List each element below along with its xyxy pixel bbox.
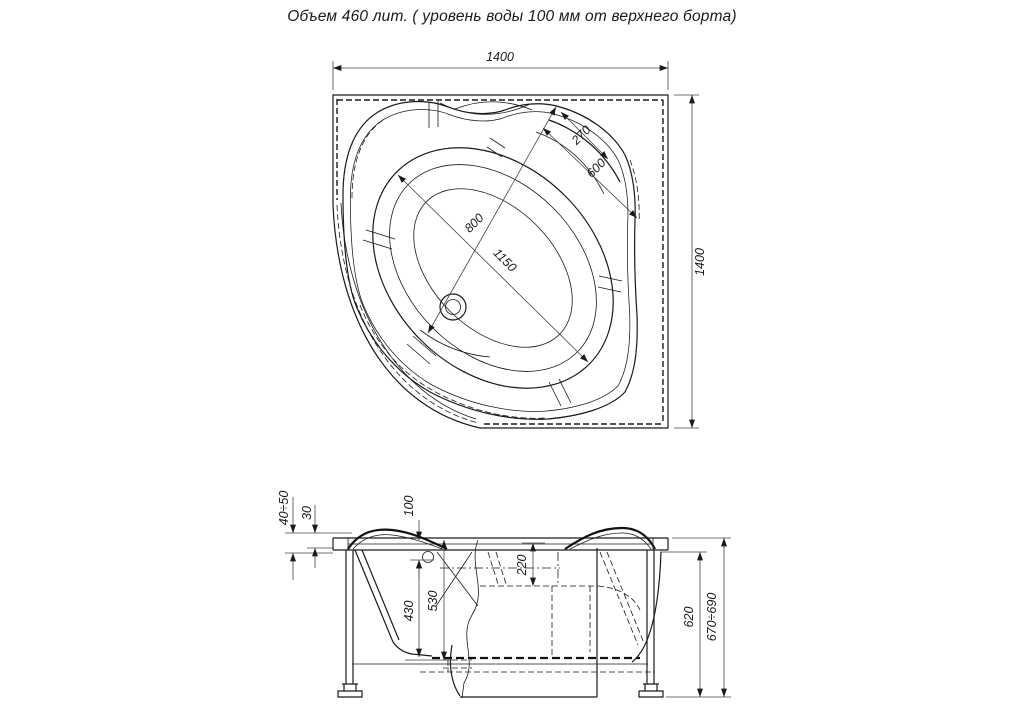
far-wall-hidden	[600, 552, 644, 645]
seat-hidden-lines	[440, 552, 640, 655]
plan-apron-line2	[341, 203, 476, 419]
dim-width-1400: 1400	[333, 50, 668, 90]
overflow-icon	[423, 552, 434, 563]
side-view: 40÷50 30 100 430	[277, 491, 731, 698]
dim-label-620: 620	[682, 607, 696, 628]
technical-drawing-page: Объем 460 лит. ( уровень воды 100 мм от …	[0, 0, 1024, 720]
plan-apron-hatch1	[337, 205, 478, 423]
dim-height-1400: 1400	[674, 95, 707, 428]
drain-icon	[440, 294, 466, 320]
wall-cross-lines	[436, 552, 478, 606]
plan-apron-curve	[333, 205, 480, 428]
dim-rim-lip: 30	[300, 505, 333, 568]
dim-frame-height: 620	[660, 552, 731, 697]
left-leg-foot	[338, 550, 362, 697]
dim-label-width: 1400	[486, 50, 514, 64]
dim-label-100: 100	[402, 496, 416, 517]
dim-label-220: 220	[515, 555, 529, 577]
dim-label-800: 800	[462, 211, 487, 236]
dim-rim-range: 40÷50	[277, 491, 352, 580]
drawing-canvas: 1400 1400 270 600 800 1150	[0, 0, 1024, 720]
dim-label-30: 30	[300, 506, 314, 520]
plan-view: 1400 1400 270 600 800 1150	[325, 50, 707, 436]
dim-inner-depth: 530	[405, 540, 452, 660]
dim-label-height: 1400	[693, 248, 707, 276]
siphon-hidden	[443, 660, 472, 672]
dim-label-270: 270	[568, 123, 593, 148]
dim-water-depth: 430	[402, 560, 419, 657]
rim-wave-detail	[440, 102, 532, 115]
dim-label-530: 530	[426, 591, 440, 612]
dim-basin-diagonals: 800 1150	[398, 107, 588, 362]
dim-label-430: 430	[402, 601, 416, 622]
dim-seat-diagonals: 270 600	[543, 112, 637, 218]
dim-label-40-50: 40÷50	[277, 491, 291, 526]
dim-total-height: 670÷690	[672, 538, 731, 697]
side-rim-mid	[348, 538, 653, 550]
basin-wall-left	[355, 550, 399, 642]
dim-label-670-690: 670÷690	[705, 593, 719, 642]
basin-bottom-left	[393, 642, 432, 656]
